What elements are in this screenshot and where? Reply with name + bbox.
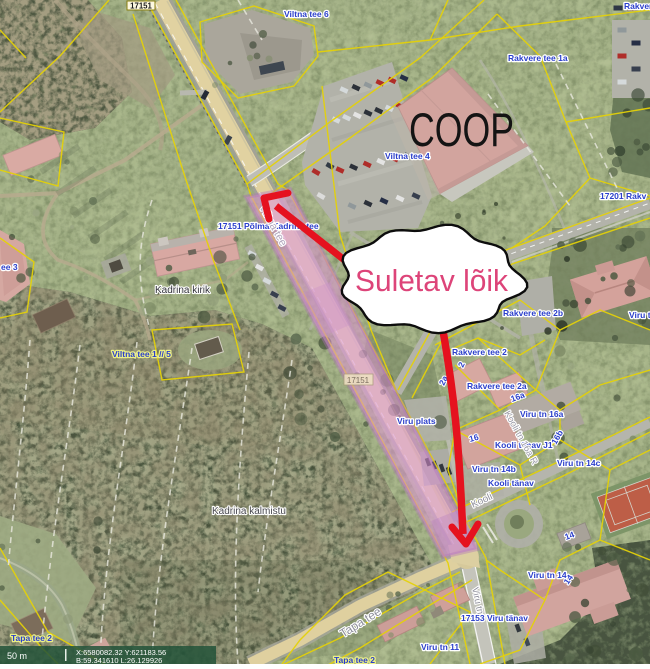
svg-text:Kadrina kirik: Kadrina kirik: [155, 285, 211, 296]
svg-text:Viru plats: Viru plats: [397, 416, 436, 426]
svg-text:Rakvere tee 2: Rakvere tee 2: [452, 347, 507, 357]
svg-text:Viru tn 14: Viru tn 14: [528, 570, 567, 580]
svg-text:17153 Viru tänav: 17153 Viru tänav: [461, 613, 528, 623]
svg-text:Viru tn 14b: Viru tn 14b: [472, 464, 516, 474]
svg-text:17151: 17151: [130, 2, 152, 11]
svg-text:17201 Rakv: 17201 Rakv: [600, 191, 647, 201]
svg-text:Rakvere tee 2a: Rakvere tee 2a: [467, 381, 527, 391]
svg-text:Viru tn 11: Viru tn 11: [421, 642, 459, 652]
svg-text:50 m: 50 m: [7, 651, 27, 661]
svg-text:Viltna tee 6: Viltna tee 6: [284, 9, 329, 19]
svg-text:17151: 17151: [347, 376, 370, 385]
svg-text:Rakvere tee 1a: Rakvere tee 1a: [508, 53, 568, 63]
svg-text:COOP: COOP: [409, 103, 514, 156]
svg-text:Viru tn 14c: Viru tn 14c: [557, 458, 601, 468]
svg-text:Viru tn 1: Viru tn 1: [629, 310, 650, 320]
svg-text:B:59.341610 L:26.129926: B:59.341610 L:26.129926: [76, 656, 162, 664]
svg-text:Tapa tee 2: Tapa tee 2: [11, 633, 52, 643]
svg-text:Kooli tänav: Kooli tänav: [488, 478, 534, 488]
svg-text:Rakvere tee 2b: Rakvere tee 2b: [503, 308, 563, 318]
svg-text:Tapa tee 2: Tapa tee 2: [334, 655, 375, 664]
svg-text:Viltna tee 1 // 5: Viltna tee 1 // 5: [112, 349, 171, 359]
svg-text:Viru tn 16a: Viru tn 16a: [520, 409, 564, 419]
svg-text:Rakvere t: Rakvere t: [624, 1, 650, 11]
svg-text:Suletav lõik: Suletav lõik: [355, 263, 508, 298]
svg-text:Kadrina kalmistu: Kadrina kalmistu: [212, 506, 286, 517]
svg-text:ee 3: ee 3: [1, 262, 18, 272]
